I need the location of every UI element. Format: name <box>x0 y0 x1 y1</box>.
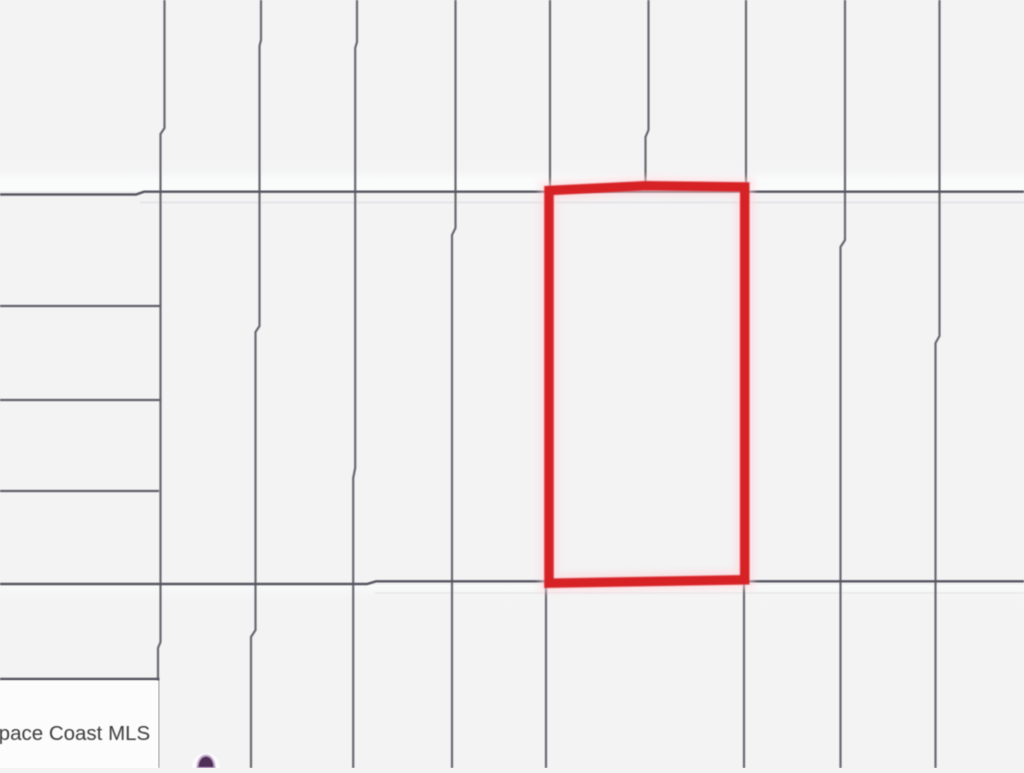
svg-text:Space Coast MLS: Space Coast MLS <box>0 722 150 745</box>
